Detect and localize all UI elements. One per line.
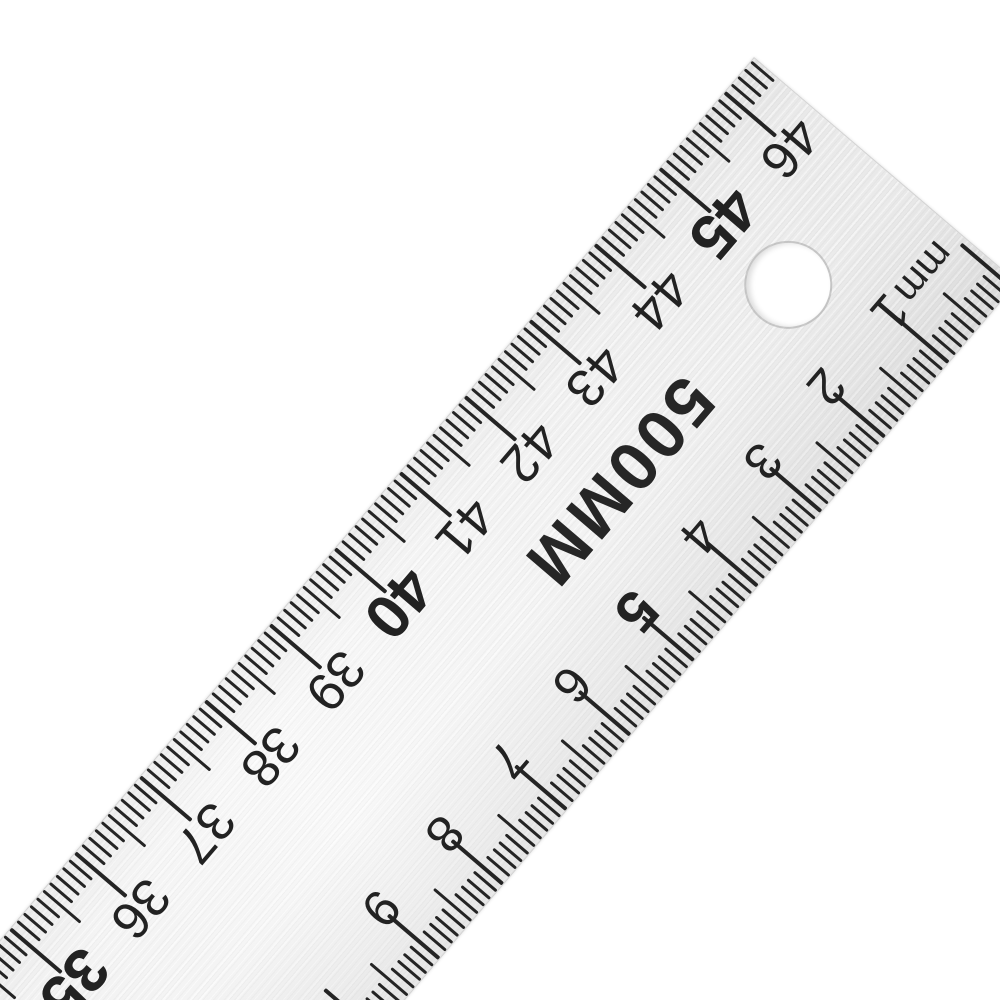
upper-cm-scale: 353637383940414243444546 (0, 58, 754, 1000)
scale-number: 5 (603, 580, 668, 642)
scale-number: 2 (798, 360, 855, 415)
ruler-body: 353637383940414243444546 123456789 mm 50… (0, 57, 1000, 1000)
scale-number: 3 (734, 434, 791, 489)
scale-number: 46 (751, 109, 830, 188)
scale-number: 41 (426, 489, 505, 568)
scale-number: 45 (677, 176, 769, 269)
scale-number: 38 (231, 717, 310, 796)
scale-number: 7 (480, 732, 537, 787)
scale-number: 36 (101, 869, 180, 948)
photo-canvas: 353637383940414243444546 123456789 mm 50… (0, 0, 1000, 1000)
scale-number: 44 (621, 261, 700, 340)
scale-number: 9 (352, 881, 409, 936)
scale-number: 37 (166, 793, 245, 872)
scale-number: 42 (491, 413, 570, 492)
scale-number: 43 (556, 337, 635, 416)
scale-number: 39 (296, 641, 375, 720)
ruler-size-label: 500MM (512, 365, 727, 600)
scale-number: 4 (671, 509, 728, 564)
scale-number: 40 (352, 556, 444, 649)
scale-number: 8 (416, 807, 473, 862)
scale-number: 35 (28, 937, 120, 1000)
scale-number: 6 (543, 658, 600, 713)
